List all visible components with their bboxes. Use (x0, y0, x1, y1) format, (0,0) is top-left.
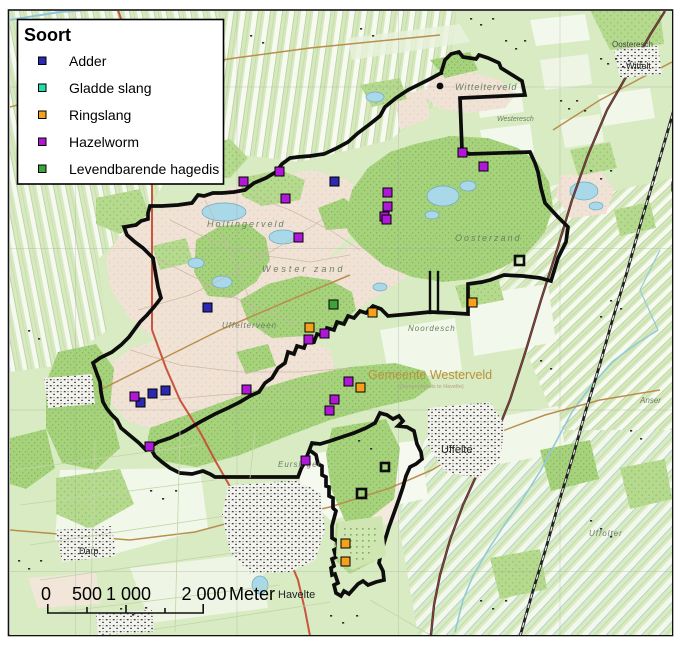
svg-text:Anser: Anser (639, 396, 661, 405)
svg-text:Havelte: Havelte (278, 589, 315, 601)
svg-text:Ringslang: Ringslang (69, 107, 131, 123)
svg-text:Noordesch: Noordesch (408, 324, 456, 333)
svg-text:Wittelterveld: Wittelterveld (455, 82, 517, 92)
svg-text:Wittelt: Wittelt (626, 61, 652, 71)
svg-text:Meter: Meter (229, 584, 275, 604)
svg-text:500: 500 (72, 584, 102, 604)
svg-text:Oosterzand: Oosterzand (455, 233, 522, 243)
svg-text:Levendbarende hagedis: Levendbarende hagedis (69, 161, 219, 177)
svg-text:Darp: Darp (79, 546, 99, 556)
svg-text:Hazelworm: Hazelworm (69, 134, 139, 150)
svg-text:Westeresch: Westeresch (497, 116, 534, 123)
svg-text:Gemeente Westerveld: Gemeente Westerveld (368, 368, 492, 382)
svg-text:Holtingerveld: Holtingerveld (207, 219, 286, 229)
svg-text:Soort: Soort (24, 25, 71, 45)
svg-text:Wester zand: Wester zand (262, 264, 345, 274)
svg-text:1 000: 1 000 (106, 584, 151, 604)
svg-text:Uffolter: Uffolter (589, 529, 623, 538)
svg-text:Oosteresch: Oosteresch (612, 40, 653, 49)
svg-text:Eursinger: Eursinger (278, 460, 321, 469)
svg-text:Uffelterveen: Uffelterveen (222, 321, 277, 330)
svg-text:Gladde slang: Gladde slang (69, 80, 152, 96)
svg-text:Adder: Adder (69, 53, 107, 69)
svg-text:0: 0 (41, 584, 51, 604)
svg-text:2 000: 2 000 (181, 584, 226, 604)
svg-text:Uffelte: Uffelte (441, 444, 473, 456)
svg-text:(Gemeentehuis te Havelte): (Gemeentehuis te Havelte) (398, 384, 464, 390)
